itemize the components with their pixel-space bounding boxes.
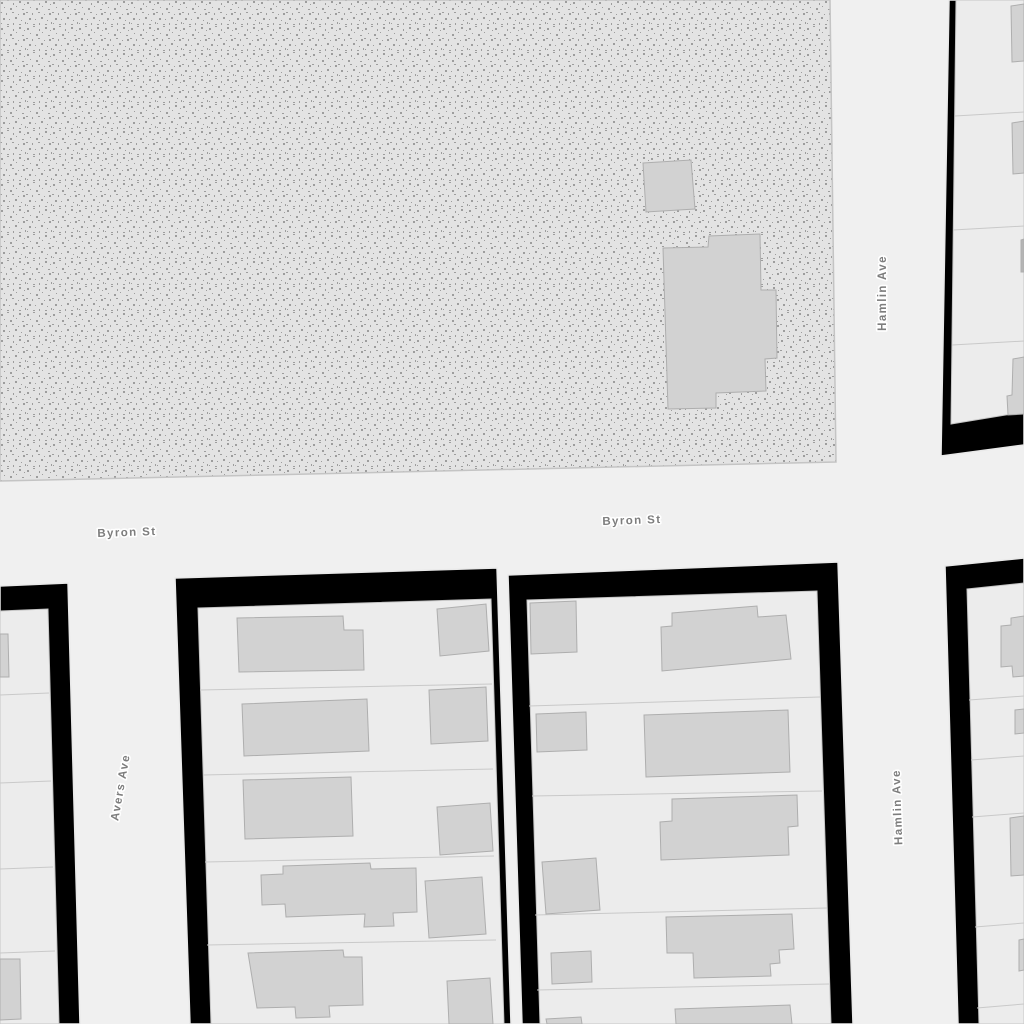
- block-west-of-avers: [0, 583, 80, 1024]
- building-footprint: [437, 803, 493, 855]
- map-canvas[interactable]: Byron StByron StHamlin AveHamlin AveAver…: [0, 0, 1024, 1024]
- street-label-hamlin-ave-north: Hamlin Ave: [877, 255, 889, 331]
- building-footprint: [0, 634, 9, 677]
- building-footprint: [536, 712, 587, 752]
- building-footprint: [1019, 939, 1024, 971]
- building-footprint: [243, 777, 353, 839]
- building-footprint: [1011, 4, 1024, 62]
- building-footprint: [530, 601, 577, 654]
- building-footprint: [425, 877, 486, 938]
- building-footprint: [661, 606, 791, 671]
- building-footprint: [437, 604, 489, 656]
- building-footprint: [447, 978, 493, 1024]
- building-footprint: [1012, 121, 1024, 174]
- building-footprint: [643, 160, 695, 212]
- building-footprint: [1010, 816, 1024, 876]
- street-label-byron-st-west: Byron St: [97, 526, 157, 540]
- block-southeast-of-hamlin: [945, 558, 1024, 1024]
- street-label-byron-st-east: Byron St: [602, 514, 662, 528]
- building-footprint: [644, 710, 790, 777]
- building-footprint: [551, 951, 592, 984]
- block-northeast-of-hamlin: [941, 0, 1024, 456]
- building-footprint: [242, 699, 369, 756]
- building-footprint: [429, 687, 488, 744]
- building-footprint: [542, 858, 600, 914]
- building-footprint: [0, 959, 21, 1020]
- building-footprint: [660, 795, 798, 860]
- building-footprint: [663, 234, 777, 409]
- block-center-west: [175, 568, 511, 1024]
- park-layer: [0, 0, 836, 481]
- building-footprint: [1015, 709, 1024, 734]
- block-center-east: [508, 562, 853, 1024]
